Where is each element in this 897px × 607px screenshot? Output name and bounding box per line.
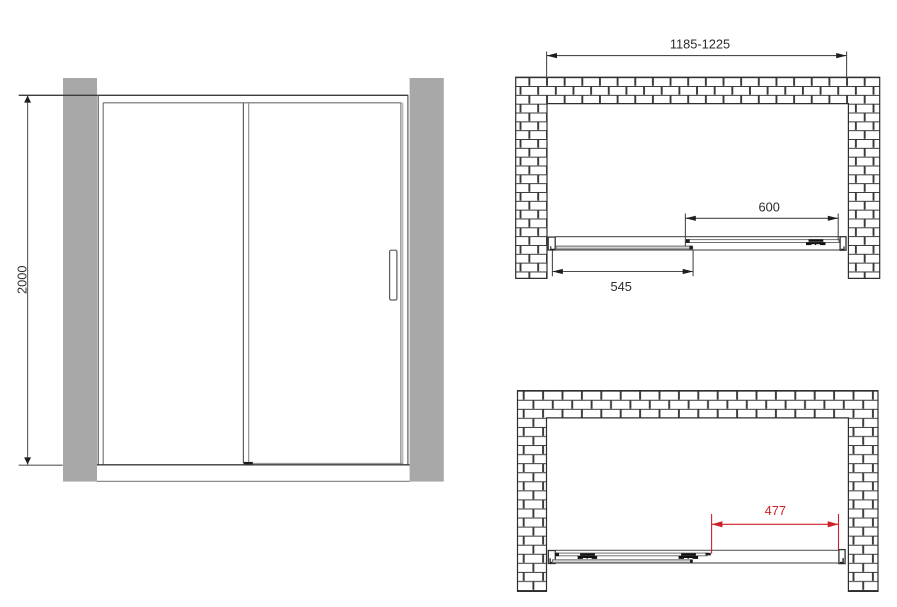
svg-text:600: 600: [759, 200, 780, 215]
svg-text:477: 477: [765, 503, 786, 518]
svg-text:1185-1225: 1185-1225: [670, 37, 730, 52]
svg-text:2000: 2000: [15, 266, 30, 294]
svg-text:545: 545: [611, 279, 632, 294]
